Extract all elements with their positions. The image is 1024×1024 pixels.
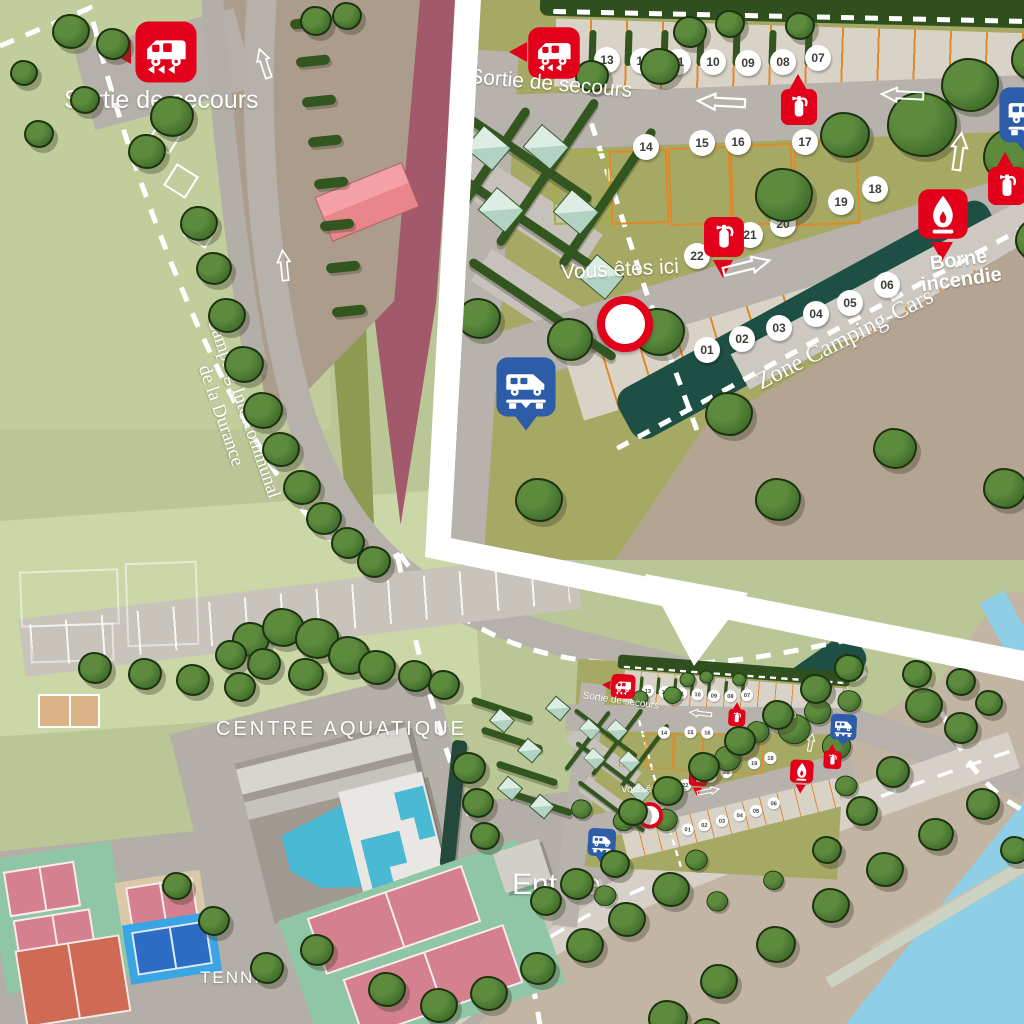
tree — [785, 12, 815, 40]
pitch-number: 01 — [694, 337, 720, 363]
tree — [873, 428, 917, 469]
pitch-number: 14 — [633, 134, 659, 160]
tree — [755, 478, 801, 521]
pitch-number: 04 — [803, 301, 829, 327]
pitch-number: 16 — [725, 129, 751, 155]
fire-extinguisher-icon — [987, 166, 1024, 206]
pitch-number: 09 — [735, 50, 761, 76]
pitch-number: 15 — [689, 130, 715, 156]
pitch-number: 17 — [792, 129, 818, 155]
tree — [673, 16, 707, 48]
tree — [755, 168, 813, 222]
camping-car-zone-inset: 1312111009080714151617222120191801020304… — [455, 0, 1024, 560]
pitch-number: 07 — [805, 45, 831, 71]
target-tick — [645, 321, 653, 324]
fire-extinguisher-icon — [703, 216, 745, 258]
camper-service-icon — [998, 86, 1024, 157]
camper-service-icon — [495, 356, 557, 432]
tree — [983, 468, 1024, 509]
pitch-number: 19 — [828, 189, 854, 215]
fire-hydrant-icon — [917, 188, 969, 240]
direction-arrow-icon — [879, 85, 926, 105]
location-target-icon — [597, 296, 653, 352]
campground-map: Sortie de secours Camping Intercommunal … — [0, 0, 1024, 1024]
tree — [640, 48, 680, 85]
pitch-outline — [668, 146, 733, 226]
pitch-number: 08 — [770, 49, 796, 75]
warning-triangle-up — [789, 74, 807, 90]
fire-extinguisher-icon — [780, 88, 818, 126]
pitch-number: 05 — [837, 290, 863, 316]
tree — [547, 318, 593, 361]
pitch-number: 03 — [766, 315, 792, 341]
pitch-number: 10 — [700, 49, 726, 75]
target-tick — [597, 321, 605, 324]
target-tick — [622, 344, 625, 352]
target-tick — [622, 296, 625, 304]
direction-arrow-icon — [695, 91, 748, 114]
pitch-number: 18 — [862, 176, 888, 202]
pitch-number: 02 — [729, 326, 755, 352]
tree — [715, 10, 745, 38]
tree — [941, 58, 999, 112]
warning-triangle-left — [509, 42, 527, 62]
